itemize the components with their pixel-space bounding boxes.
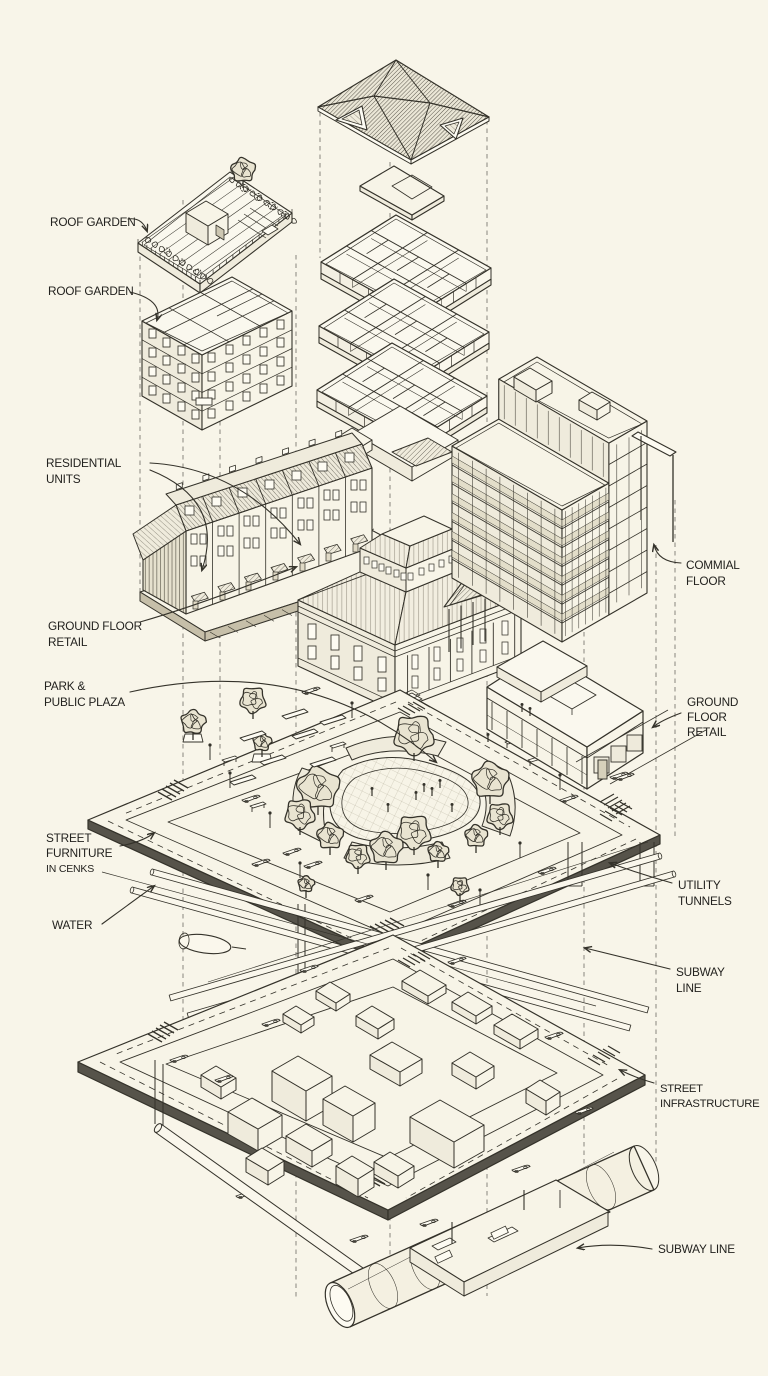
- svg-text:LINE: LINE: [676, 981, 702, 995]
- svg-text:FURNITURE: FURNITURE: [46, 846, 113, 860]
- svg-text:STREET: STREET: [660, 1083, 703, 1095]
- svg-text:SUBWAY LINE: SUBWAY LINE: [658, 1242, 735, 1256]
- svg-text:UTILITY: UTILITY: [678, 878, 721, 892]
- svg-text:GROUND: GROUND: [687, 695, 738, 709]
- svg-text:UNITS: UNITS: [46, 472, 81, 486]
- svg-text:IN CENKS: IN CENKS: [46, 863, 94, 875]
- svg-text:WATER: WATER: [52, 918, 92, 932]
- svg-text:ROOF GARDEN: ROOF GARDEN: [50, 215, 136, 229]
- svg-text:RETAIL: RETAIL: [48, 635, 88, 649]
- svg-text:PUBLIC PLAZA: PUBLIC PLAZA: [44, 695, 125, 709]
- svg-text:GROUND FLOOR: GROUND FLOOR: [48, 619, 142, 633]
- svg-text:STREET: STREET: [46, 831, 91, 845]
- svg-text:INFRASTRUCTURE: INFRASTRUCTURE: [660, 1098, 760, 1110]
- svg-text:COMMIAL: COMMIAL: [686, 558, 740, 572]
- svg-text:ROOF GARDEN: ROOF GARDEN: [48, 284, 134, 298]
- svg-text:SUBWAY: SUBWAY: [676, 965, 725, 979]
- svg-text:PARK &: PARK &: [44, 679, 86, 693]
- svg-text:FLOOR: FLOOR: [687, 710, 727, 724]
- svg-text:TUNNELS: TUNNELS: [678, 894, 732, 908]
- svg-text:FLOOR: FLOOR: [686, 574, 726, 588]
- svg-text:RESIDENTIAL: RESIDENTIAL: [46, 456, 122, 470]
- svg-text:RETAIL: RETAIL: [687, 725, 727, 739]
